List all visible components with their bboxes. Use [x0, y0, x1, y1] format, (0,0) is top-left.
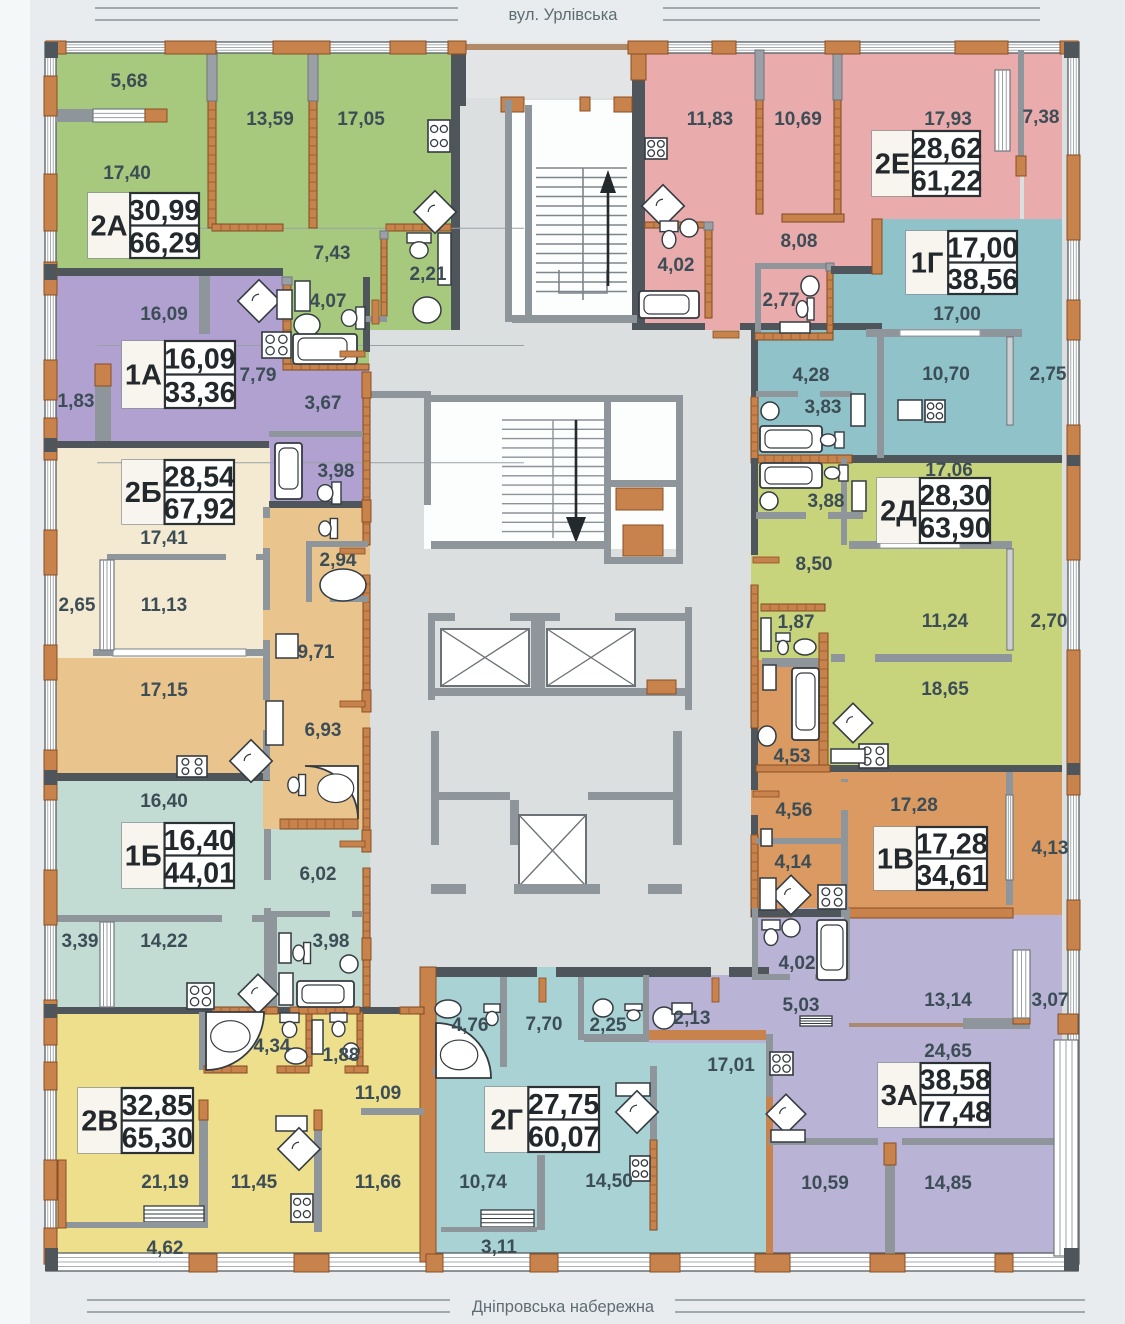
svg-text:17,41: 17,41: [140, 528, 188, 549]
svg-text:65,30: 65,30: [122, 1122, 193, 1154]
svg-text:5,03: 5,03: [783, 995, 820, 1016]
svg-text:11,45: 11,45: [231, 1172, 278, 1193]
svg-text:11,66: 11,66: [355, 1172, 402, 1193]
svg-text:77,48: 77,48: [920, 1097, 991, 1129]
svg-text:67,92: 67,92: [164, 494, 235, 526]
svg-text:4,14: 4,14: [775, 852, 812, 873]
svg-text:10,74: 10,74: [459, 1172, 507, 1193]
svg-text:4,02: 4,02: [779, 953, 816, 974]
svg-text:17,93: 17,93: [924, 109, 972, 130]
svg-text:16,40: 16,40: [164, 825, 235, 857]
svg-text:2,21: 2,21: [410, 264, 447, 285]
svg-text:4,02: 4,02: [658, 255, 695, 276]
svg-text:2,65: 2,65: [59, 595, 96, 616]
svg-text:17,05: 17,05: [337, 109, 385, 130]
svg-text:14,22: 14,22: [140, 931, 188, 952]
svg-text:2А: 2А: [91, 211, 128, 243]
svg-text:38,58: 38,58: [920, 1065, 991, 1097]
svg-text:18,65: 18,65: [921, 679, 969, 700]
svg-text:14,85: 14,85: [924, 1173, 972, 1194]
svg-text:11,13: 11,13: [141, 595, 188, 616]
svg-text:3,98: 3,98: [313, 931, 350, 952]
svg-text:17,28: 17,28: [916, 828, 987, 860]
svg-text:17,00: 17,00: [947, 232, 1018, 264]
svg-text:2,25: 2,25: [590, 1015, 627, 1036]
svg-text:1Г: 1Г: [911, 248, 944, 280]
svg-text:9,71: 9,71: [298, 642, 335, 663]
svg-text:8,50: 8,50: [796, 554, 833, 575]
svg-text:16,09: 16,09: [140, 304, 188, 325]
svg-text:14,50: 14,50: [585, 1171, 633, 1192]
svg-text:11,24: 11,24: [922, 611, 969, 632]
svg-text:6,02: 6,02: [300, 864, 337, 885]
svg-text:1А: 1А: [125, 360, 162, 392]
svg-text:2,77: 2,77: [763, 290, 800, 311]
svg-text:4,62: 4,62: [147, 1238, 184, 1259]
svg-text:2Д: 2Д: [880, 496, 917, 528]
svg-text:17,15: 17,15: [140, 680, 188, 701]
svg-text:4,07: 4,07: [310, 291, 347, 312]
svg-text:60,07: 60,07: [528, 1121, 599, 1153]
svg-text:1,83: 1,83: [58, 391, 95, 412]
svg-text:28,30: 28,30: [919, 480, 990, 512]
svg-text:17,00: 17,00: [933, 304, 981, 325]
svg-text:28,62: 28,62: [911, 133, 982, 165]
svg-text:28,54: 28,54: [164, 462, 235, 494]
svg-text:13,59: 13,59: [246, 109, 294, 130]
svg-text:3,07: 3,07: [1032, 990, 1069, 1011]
svg-text:4,28: 4,28: [793, 365, 830, 386]
svg-text:16,09: 16,09: [164, 343, 235, 375]
svg-text:44,01: 44,01: [164, 857, 235, 889]
svg-text:61,22: 61,22: [911, 165, 982, 197]
svg-text:4,34: 4,34: [254, 1036, 291, 1057]
svg-text:17,40: 17,40: [103, 163, 151, 184]
svg-text:7,70: 7,70: [526, 1014, 563, 1035]
svg-text:7,79: 7,79: [240, 365, 277, 386]
svg-text:11,09: 11,09: [355, 1083, 402, 1104]
svg-text:10,70: 10,70: [922, 364, 970, 385]
svg-text:7,43: 7,43: [314, 243, 351, 264]
svg-text:33,36: 33,36: [164, 377, 235, 409]
svg-text:4,76: 4,76: [452, 1015, 489, 1036]
svg-text:17,28: 17,28: [890, 795, 938, 816]
svg-text:66,29: 66,29: [129, 227, 200, 259]
svg-text:2Г: 2Г: [490, 1105, 523, 1137]
svg-text:3,83: 3,83: [805, 397, 842, 418]
svg-text:4,53: 4,53: [774, 746, 811, 767]
svg-text:2В: 2В: [81, 1106, 118, 1138]
svg-text:3,11: 3,11: [481, 1237, 517, 1258]
svg-text:2Б: 2Б: [125, 477, 162, 509]
svg-text:6,93: 6,93: [305, 720, 342, 741]
svg-text:3,98: 3,98: [318, 461, 355, 482]
svg-text:10,59: 10,59: [801, 1173, 849, 1194]
svg-text:4,13: 4,13: [1032, 838, 1069, 859]
svg-text:24,65: 24,65: [924, 1041, 972, 1062]
svg-text:2,13: 2,13: [674, 1008, 711, 1029]
svg-text:4,56: 4,56: [776, 800, 813, 821]
svg-text:63,90: 63,90: [919, 512, 990, 544]
svg-text:17,01: 17,01: [707, 1055, 755, 1076]
svg-text:вул. Урлівська: вул. Урлівська: [509, 6, 619, 24]
svg-text:1В: 1В: [877, 844, 914, 876]
svg-text:2,75: 2,75: [1030, 364, 1067, 385]
svg-text:34,61: 34,61: [916, 860, 987, 892]
svg-text:11,83: 11,83: [687, 109, 734, 130]
svg-text:Дніпровська набережна: Дніпровська набережна: [472, 1298, 655, 1316]
svg-text:2,70: 2,70: [1031, 611, 1068, 632]
svg-text:10,69: 10,69: [774, 109, 822, 130]
svg-text:1,87: 1,87: [778, 612, 815, 633]
svg-text:21,19: 21,19: [141, 1172, 189, 1193]
svg-text:3,67: 3,67: [305, 393, 342, 414]
svg-text:30,99: 30,99: [129, 195, 200, 227]
svg-text:3А: 3А: [881, 1080, 918, 1112]
svg-text:27,75: 27,75: [528, 1089, 599, 1121]
svg-text:1Б: 1Б: [125, 841, 162, 873]
svg-text:2Е: 2Е: [875, 149, 910, 181]
svg-text:38,56: 38,56: [947, 264, 1018, 296]
svg-text:16,40: 16,40: [140, 791, 188, 812]
svg-text:8,08: 8,08: [781, 231, 818, 252]
svg-text:1,88: 1,88: [323, 1045, 360, 1066]
svg-text:13,14: 13,14: [924, 990, 972, 1011]
svg-text:32,85: 32,85: [122, 1090, 193, 1122]
svg-text:7,38: 7,38: [1023, 107, 1060, 128]
svg-text:3,88: 3,88: [808, 491, 845, 512]
svg-text:3,39: 3,39: [62, 931, 99, 952]
svg-text:5,68: 5,68: [111, 71, 148, 92]
